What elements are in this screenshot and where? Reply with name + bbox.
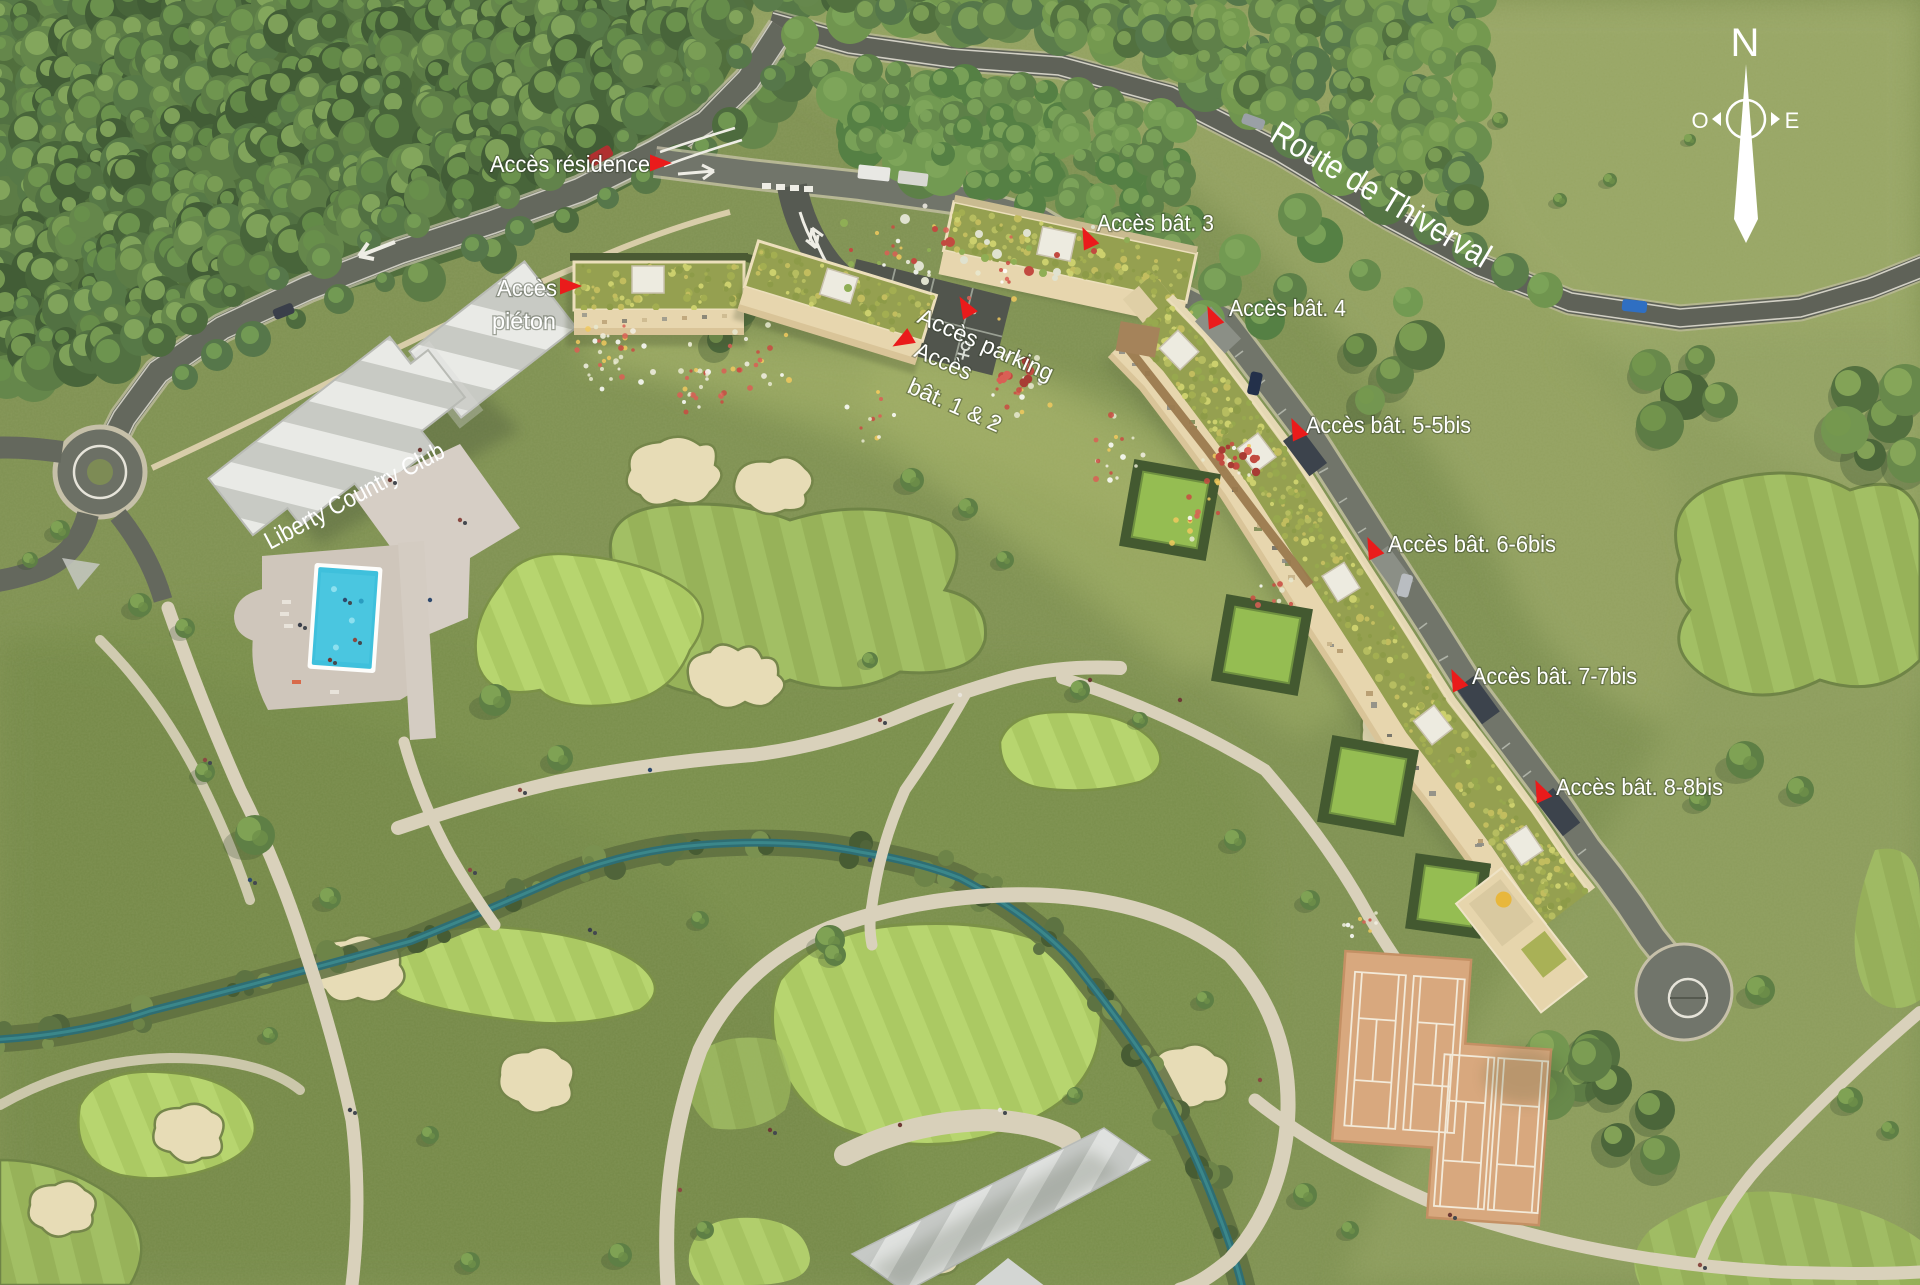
- svg-text:Accès bât. 5-5bis: Accès bât. 5-5bis: [1306, 412, 1471, 438]
- svg-text:Accès bât. 3: Accès bât. 3: [1097, 210, 1214, 236]
- svg-text:N: N: [1731, 21, 1760, 65]
- svg-text:Accès bât. 7-7bis: Accès bât. 7-7bis: [1472, 663, 1637, 689]
- svg-text:Accès bât. 8-8bis: Accès bât. 8-8bis: [1556, 774, 1723, 800]
- svg-text:Accès résidence: Accès résidence: [490, 151, 650, 177]
- svg-text:Accès bât. 6-6bis: Accès bât. 6-6bis: [1388, 531, 1556, 557]
- svg-text:piéton: piéton: [492, 308, 556, 334]
- svg-text:O: O: [1691, 108, 1708, 133]
- svg-text:Accès bât. 4: Accès bât. 4: [1229, 295, 1346, 321]
- svg-text:E: E: [1785, 108, 1800, 133]
- svg-text:Accès: Accès: [497, 275, 557, 301]
